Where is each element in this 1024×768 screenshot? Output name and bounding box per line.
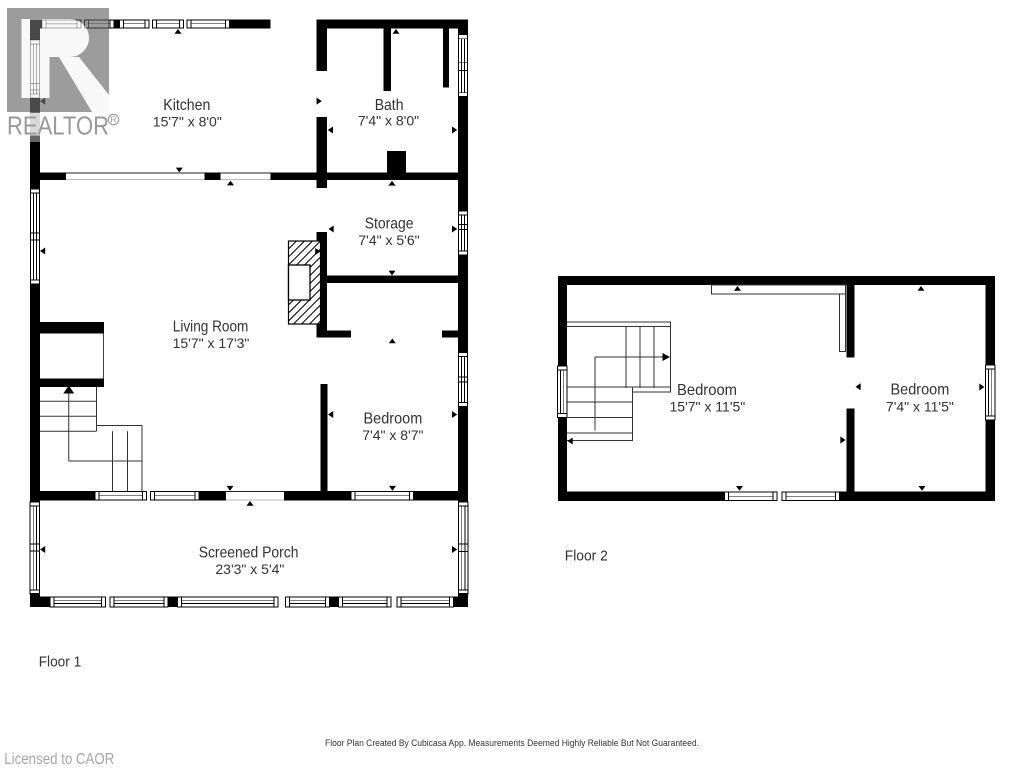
svg-text:Floor 1: Floor 1 xyxy=(39,654,81,671)
svg-text:7'4" x 5'6": 7'4" x 5'6" xyxy=(358,232,419,248)
svg-text:Bedroom: Bedroom xyxy=(677,382,737,399)
svg-text:R: R xyxy=(110,115,116,125)
svg-text:Licensed to CAOR: Licensed to CAOR xyxy=(4,751,114,768)
svg-text:Bedroom: Bedroom xyxy=(364,411,423,428)
svg-text:Bath: Bath xyxy=(375,97,404,114)
svg-text:REALTOR: REALTOR xyxy=(7,111,109,141)
svg-text:15'7" x 11'5": 15'7" x 11'5" xyxy=(670,399,746,415)
svg-text:15'7" x 17'3": 15'7" x 17'3" xyxy=(173,335,250,351)
svg-text:7'4" x 8'7": 7'4" x 8'7" xyxy=(362,427,423,443)
svg-text:Floor Plan Created By Cubicasa: Floor Plan Created By Cubicasa App. Meas… xyxy=(325,738,699,748)
svg-text:7'4" x 8'0": 7'4" x 8'0" xyxy=(358,113,419,129)
svg-text:23'3" x 5'4": 23'3" x 5'4" xyxy=(215,561,284,577)
svg-text:Floor 2: Floor 2 xyxy=(565,548,608,565)
svg-text:15'7" x 8'0": 15'7" x 8'0" xyxy=(153,114,222,130)
svg-text:Screened Porch: Screened Porch xyxy=(199,544,299,561)
svg-text:Bedroom: Bedroom xyxy=(891,382,950,399)
svg-text:Kitchen: Kitchen xyxy=(163,97,210,114)
svg-text:7'4" x 11'5": 7'4" x 11'5" xyxy=(886,399,954,415)
svg-text:Living Room: Living Room xyxy=(173,319,249,336)
svg-text:Storage: Storage xyxy=(365,216,414,233)
